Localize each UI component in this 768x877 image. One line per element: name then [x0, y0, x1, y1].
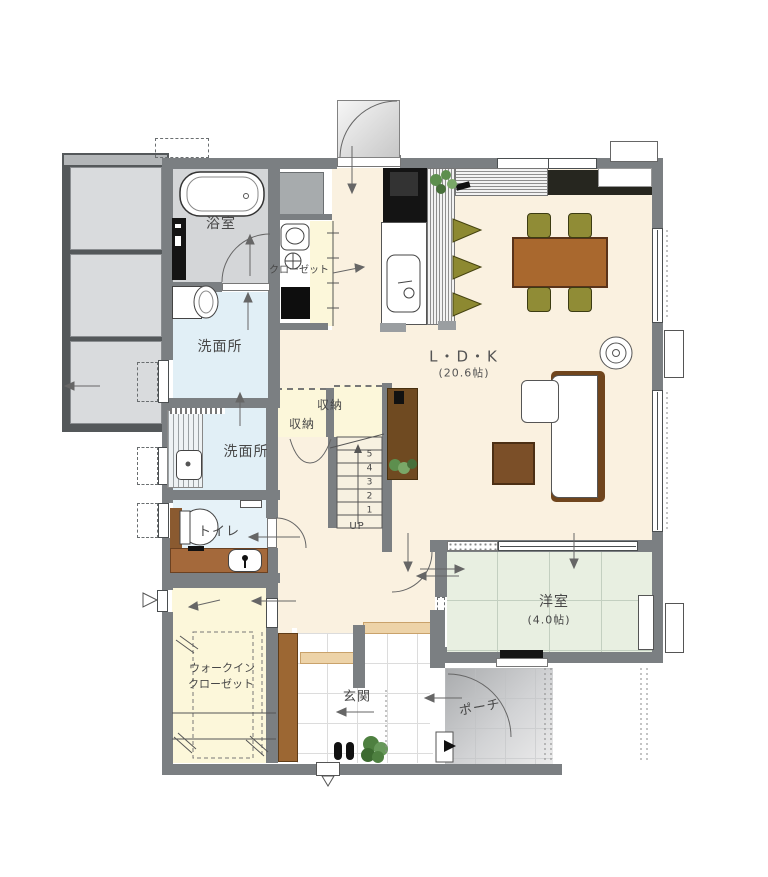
- dining-chair: [568, 287, 592, 312]
- room-label-washroom-upper: 洗面所: [198, 340, 243, 354]
- shoes: [346, 742, 354, 760]
- wall-wic-top: [162, 578, 278, 588]
- shoe-cabinet: [278, 633, 298, 762]
- wall-western-room-west: [435, 552, 447, 597]
- sofa-chaise: [521, 380, 559, 423]
- entrance-step-top: [363, 622, 437, 634]
- room-label-closet: クローゼット: [269, 266, 329, 276]
- wall-under-graybox: [278, 214, 332, 220]
- stairs-floor: [337, 437, 382, 528]
- north-window-mullion: [548, 159, 549, 168]
- east-window-1-mullion: [657, 230, 658, 321]
- room-label-western: 洋室: [539, 595, 569, 609]
- stair-number: 2: [367, 493, 374, 502]
- hall-floor-upper: [276, 330, 332, 388]
- closet-black-cabinet: [281, 287, 310, 319]
- west-window-1: [158, 360, 169, 403]
- terrace-panel: [70, 167, 162, 250]
- kitchen-counter: [381, 222, 427, 325]
- wall-north: [165, 158, 337, 169]
- room-label-western-size: (4.0帖): [527, 615, 570, 626]
- terrace-panel: [70, 254, 162, 337]
- stair-number: 4: [367, 465, 374, 474]
- toilet-door-sill: [267, 518, 277, 548]
- western-room-south-sill: [496, 658, 548, 667]
- kitchen-cap: [380, 323, 406, 332]
- wall-genkan-stub: [353, 625, 365, 688]
- wall-washrooms: [162, 398, 280, 408]
- wall-east: [652, 323, 663, 390]
- tv-board: [548, 170, 598, 195]
- wic-window: [157, 590, 168, 612]
- south-meter-box: [316, 762, 340, 776]
- room-label-storage-upper: 収納: [317, 399, 343, 411]
- wall-east: [652, 158, 663, 228]
- room-label-ldk: L・D・K: [429, 350, 499, 365]
- ldk-door-gap: [392, 540, 432, 552]
- terrace-top-bar: [64, 155, 167, 165]
- stair-number: 5: [367, 451, 374, 460]
- stair-number: 3: [367, 479, 374, 488]
- stairs-up-label: UP: [349, 522, 364, 532]
- outdoor-unit-east: [664, 330, 684, 378]
- floor-plan: 浴室 クローゼット 洗面所 洗面所 収納 収納 トイレ L・D・K (20.6帖…: [0, 0, 768, 877]
- room-label-bathroom: 浴室: [206, 217, 236, 231]
- stair-number: 1: [367, 507, 374, 516]
- western-room-desk: [638, 595, 654, 650]
- entrance-step-left: [300, 652, 355, 664]
- kitchen-cap: [438, 321, 456, 330]
- shoes: [334, 742, 342, 760]
- hall-floor-stairfront: [276, 437, 328, 528]
- wall-west: [162, 612, 173, 775]
- western-room-transom: [447, 541, 498, 551]
- wall-storage-divider: [326, 388, 334, 437]
- wic-window-mark: [143, 593, 157, 607]
- washroom-slide-rail: [170, 408, 225, 414]
- western-room-south-window: [500, 650, 543, 658]
- western-room-window-rail: [500, 546, 636, 547]
- wall-south: [162, 764, 562, 775]
- washroom-basin: [176, 450, 202, 480]
- east-window-2-mullion: [657, 392, 658, 530]
- room-label-ldk-size: (20.6帖): [438, 368, 489, 379]
- dining-chair: [527, 213, 551, 238]
- west-window-3-eave: [137, 503, 158, 538]
- shower-panel: [172, 218, 186, 280]
- wall-toilet-east: [266, 408, 278, 518]
- dining-chair: [568, 213, 592, 238]
- coffee-table: [492, 442, 535, 485]
- north-vent-dashed: [155, 138, 209, 158]
- room-label-toilet: トイレ: [198, 526, 240, 539]
- wall-under-closet: [276, 323, 328, 330]
- wall-washroom-toilet: [162, 490, 280, 500]
- eave-box: [610, 141, 658, 162]
- toilet-tank: [170, 508, 182, 548]
- west-window-1-eave: [137, 362, 158, 402]
- room-label-wic-line1: ウォークイン: [189, 663, 255, 674]
- toilet-shelf: [240, 500, 262, 508]
- room-label-entrance: 玄関: [343, 691, 371, 704]
- gray-storage-box: [278, 172, 324, 216]
- panel-hook: [394, 391, 404, 404]
- wic-floor: [172, 588, 266, 763]
- kitchen-island-panel: [427, 168, 455, 325]
- bathroom-door-sill: [222, 283, 270, 291]
- west-window-2-eave: [137, 447, 158, 485]
- wall-bath-east: [268, 158, 280, 398]
- tv-board-niche: [598, 168, 652, 187]
- wall-stair-left: [328, 437, 337, 528]
- outdoor-unit-southeast: [665, 603, 684, 653]
- tv-board-low: [598, 187, 652, 195]
- back-door: [337, 100, 400, 158]
- room-label-wic-line2: クローゼット: [188, 679, 254, 690]
- dining-chair: [527, 287, 551, 312]
- porch-door-gap: [430, 668, 445, 732]
- wic-sliding-door: [266, 598, 278, 628]
- room-label-washroom-lower: 洗面所: [224, 445, 269, 459]
- south-meter-mark: [322, 776, 334, 786]
- west-window-3: [158, 503, 169, 538]
- refrigerator-inner: [390, 172, 418, 196]
- counter-item: [188, 546, 204, 551]
- room-label-storage-lower: 収納: [289, 418, 315, 430]
- dining-table: [512, 237, 608, 288]
- wall-porch-west: [430, 610, 445, 668]
- toilet-basin: [228, 549, 262, 572]
- washing-machine: [172, 286, 202, 319]
